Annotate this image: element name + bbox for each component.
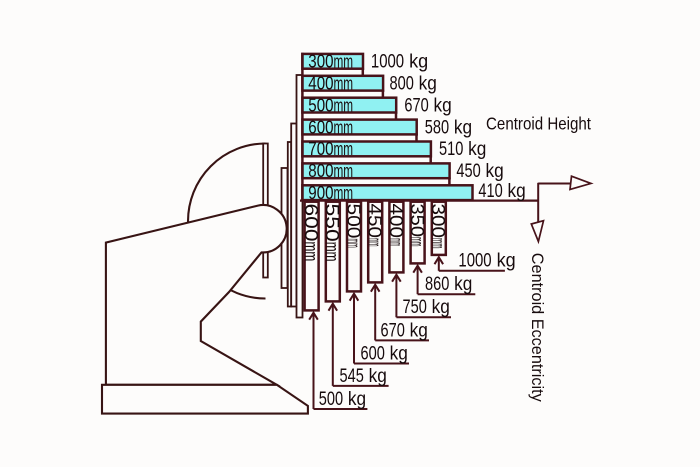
svg-text:450 kg: 450 kg <box>456 160 503 182</box>
svg-text:670 kg: 670 kg <box>381 320 428 341</box>
svg-text:500mm: 500mm <box>308 95 353 115</box>
svg-text:600 kg: 600 kg <box>361 343 408 364</box>
svg-text:800mm: 800mm <box>308 161 353 181</box>
svg-text:Centroid Eccentricity: Centroid Eccentricity <box>528 253 546 403</box>
svg-text:1000 kg: 1000 kg <box>458 251 515 272</box>
svg-text:580 kg: 580 kg <box>425 116 472 138</box>
svg-text:400mm: 400mm <box>308 74 353 94</box>
svg-text:450mm: 450mm <box>365 204 385 247</box>
svg-text:860 kg: 860 kg <box>425 274 472 295</box>
svg-text:350mm: 350mm <box>407 204 427 247</box>
svg-text:550mm: 550mm <box>322 204 342 262</box>
svg-text:800 kg: 800 kg <box>390 73 437 95</box>
svg-text:600mm: 600mm <box>301 204 321 262</box>
svg-text:500 kg: 500 kg <box>319 389 366 410</box>
svg-text:500mm: 500mm <box>343 204 363 248</box>
svg-text:410 kg: 410 kg <box>478 180 525 202</box>
svg-text:600mm: 600mm <box>308 117 353 137</box>
svg-text:400mm: 400mm <box>386 204 406 247</box>
svg-text:750 kg: 750 kg <box>403 297 450 318</box>
svg-text:900mm: 900mm <box>308 183 353 203</box>
svg-text:700mm: 700mm <box>308 139 353 159</box>
svg-text:1000 kg: 1000 kg <box>371 51 428 73</box>
svg-text:Centroid Height: Centroid Height <box>486 113 591 133</box>
svg-text:545 kg: 545 kg <box>340 366 387 387</box>
svg-text:300mm: 300mm <box>428 204 448 249</box>
svg-text:670 kg: 670 kg <box>404 94 451 116</box>
svg-text:300mm: 300mm <box>308 52 353 72</box>
svg-text:510 kg: 510 kg <box>439 138 486 160</box>
